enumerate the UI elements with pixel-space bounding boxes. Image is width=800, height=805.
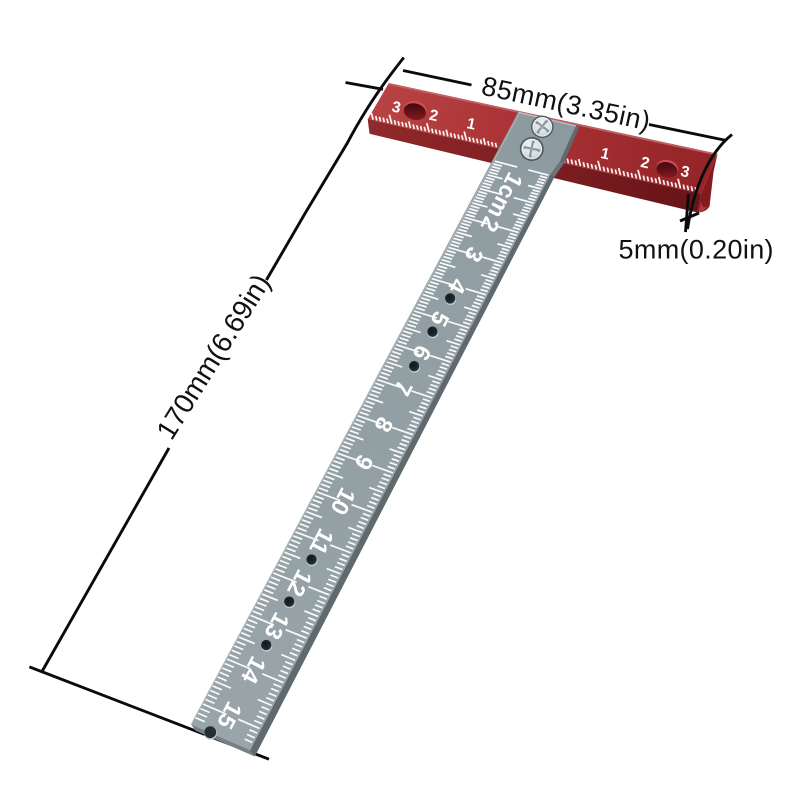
svg-text:5mm(0.20in): 5mm(0.20in) — [619, 235, 774, 265]
